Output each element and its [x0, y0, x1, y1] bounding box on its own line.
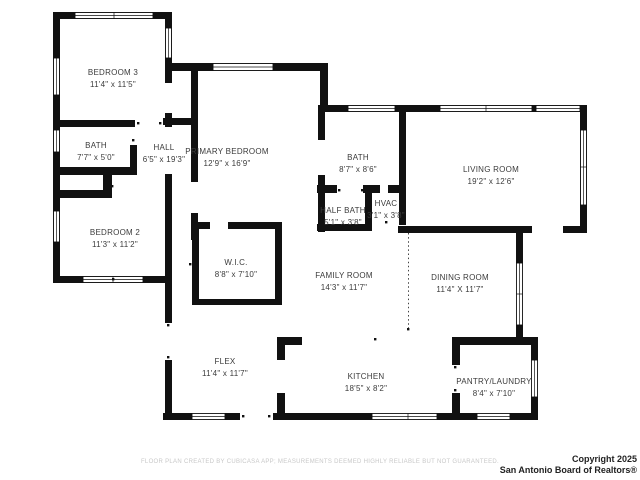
room-label-bedroom-2: BEDROOM 211'3" x 11'2": [90, 227, 140, 250]
room-dims: 6'5" x 19'3": [143, 154, 185, 166]
room-dims: 11'4" x 11'7": [202, 368, 248, 380]
room-label-kitchen: KITCHEN18'5" x 8'2": [345, 371, 387, 394]
room-name: BEDROOM 2: [90, 227, 140, 239]
room-dims: 5'1" x 3'8": [320, 217, 366, 229]
room-label-bedroom-3: BEDROOM 311'4" x 11'5": [88, 67, 138, 90]
room-label-hall: HALL6'5" x 19'3": [143, 142, 185, 165]
room-label-bath: BATH7'7" x 5'0": [77, 140, 115, 163]
room-name: BEDROOM 3: [88, 67, 138, 79]
room-label-pantry-laundry: PANTRY/LAUNDRY8'4" x 7'10": [456, 376, 532, 399]
room-label-primary-bath: BATH8'7" x 8'6": [339, 152, 377, 175]
room-dims: 18'5" x 8'2": [345, 383, 387, 395]
copyright-text: Copyright 2025 San Antonio Board of Real…: [500, 454, 637, 476]
room-name: HALL: [143, 142, 185, 154]
room-label-family-room: FAMILY ROOM14'3" x 11'7": [315, 270, 373, 293]
copyright-line-1: Copyright 2025: [500, 454, 637, 465]
room-name: FLEX: [202, 356, 248, 368]
room-name: W.I.C.: [215, 257, 257, 269]
room-dims: 19'2" x 12'6": [463, 176, 519, 188]
room-dims: 3'1" x 3'8": [367, 210, 405, 222]
room-dims: 11'4" X 11'7": [431, 284, 489, 296]
room-label-half-bath: HALF BATH5'1" x 3'8": [320, 205, 366, 228]
room-dims: 12'9" x 16'9": [185, 158, 268, 170]
room-name: BATH: [339, 152, 377, 164]
room-label-hvac: HVAC3'1" x 3'8": [367, 198, 405, 221]
room-label-primary-bedroom: PRIMARY BEDROOM12'9" x 16'9": [185, 146, 268, 169]
room-dims: 14'3" x 11'7": [315, 282, 373, 294]
room-dims: 8'4" x 7'10": [456, 388, 532, 400]
room-name: PRIMARY BEDROOM: [185, 146, 268, 158]
room-name: PANTRY/LAUNDRY: [456, 376, 532, 388]
room-dims: 8'8" x 7'10": [215, 269, 257, 281]
room-name: FAMILY ROOM: [315, 270, 373, 282]
room-dims: 11'4" x 11'5": [88, 79, 138, 91]
room-label-flex: FLEX11'4" x 11'7": [202, 356, 248, 379]
room-label-dining-room: DINING ROOM11'4" X 11'7": [431, 272, 489, 295]
copyright-line-2: San Antonio Board of Realtors®: [500, 465, 637, 476]
room-label-wic: W.I.C.8'8" x 7'10": [215, 257, 257, 280]
room-dims: 11'3" x 11'2": [90, 239, 140, 251]
room-name: HALF BATH: [320, 205, 366, 217]
room-name: LIVING ROOM: [463, 164, 519, 176]
room-dims: 7'7" x 5'0": [77, 152, 115, 164]
room-dims: 8'7" x 8'6": [339, 164, 377, 176]
room-name: BATH: [77, 140, 115, 152]
room-name: DINING ROOM: [431, 272, 489, 284]
floor-plan-page: BEDROOM 311'4" x 11'5" BATH7'7" x 5'0" H…: [0, 0, 640, 480]
room-name: KITCHEN: [345, 371, 387, 383]
room-name: HVAC: [367, 198, 405, 210]
room-label-living-room: LIVING ROOM19'2" x 12'6": [463, 164, 519, 187]
